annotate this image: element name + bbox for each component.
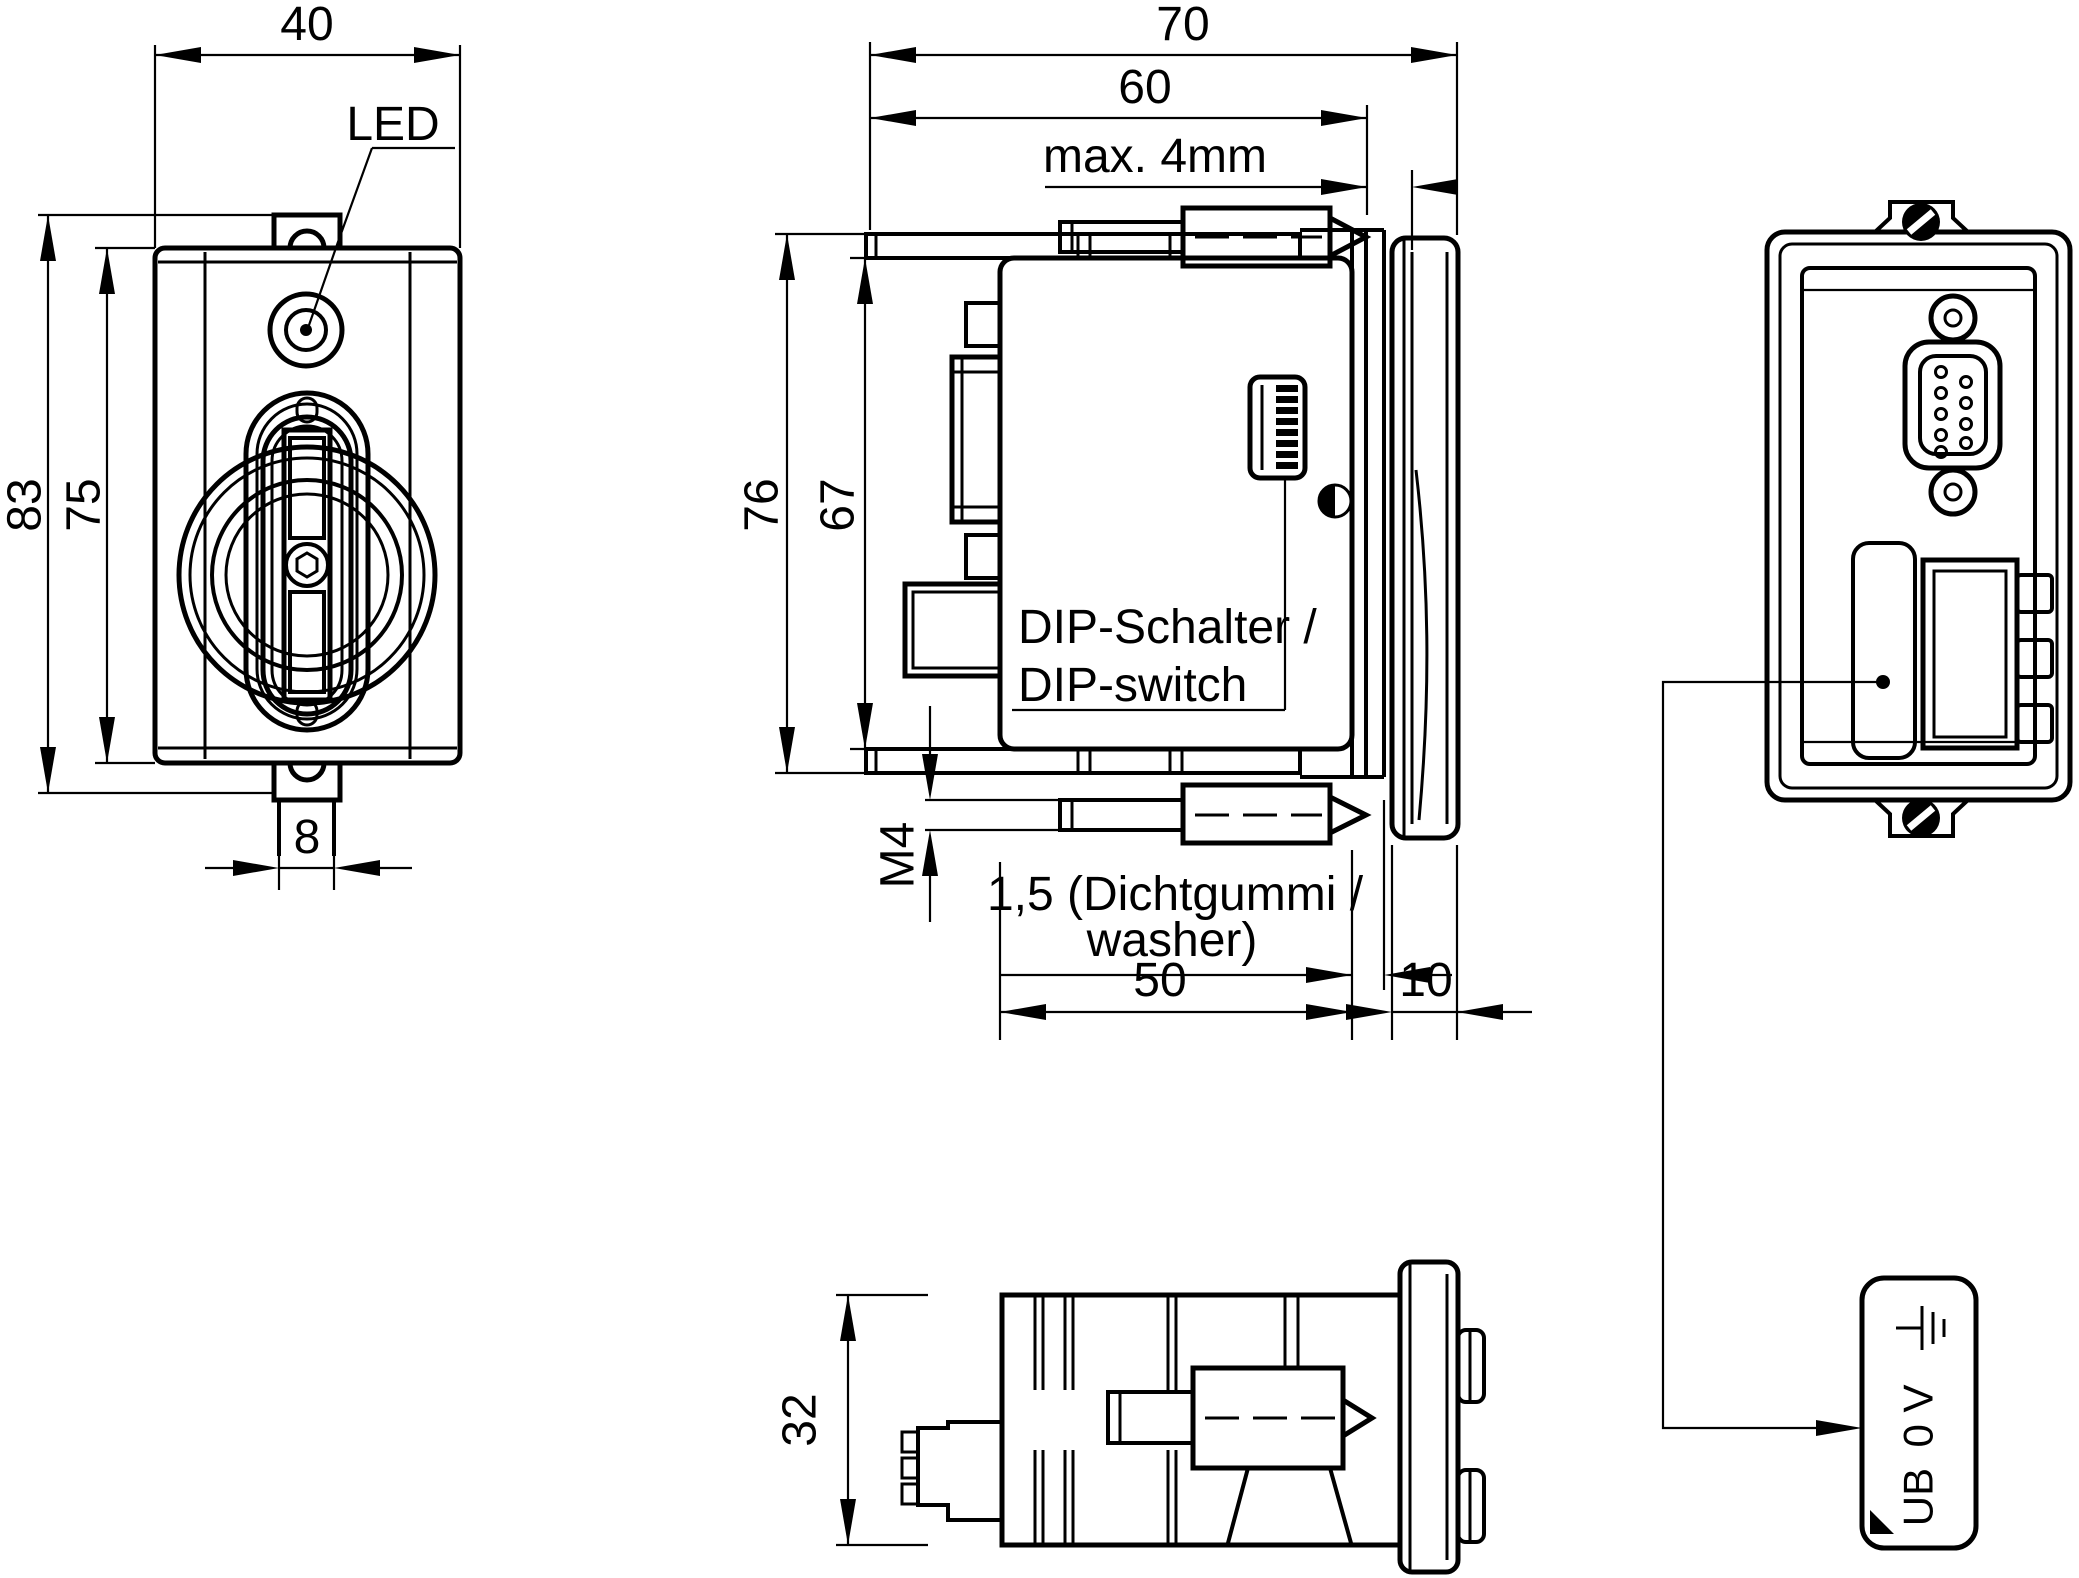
dim-side-bezel-depth-text: 10 [1399,954,1452,1007]
power-label-ub: UB [1895,1468,1942,1526]
drawing-canvas: LED 40 [0,0,2079,1578]
clamp-screw-bottom [1060,785,1366,843]
terminal-block-bottom-view [902,1422,1002,1520]
dsub-connector [1905,296,2000,514]
bottom-view: 32 [774,1262,1485,1572]
key-screw [286,544,328,586]
dim-front-face-height-text: 75 [58,478,111,531]
led-label: LED [346,98,439,151]
dim-side-outer-height-text: 76 [736,478,789,531]
bezel-side-profile [1392,238,1458,838]
dim-front-tab-width: 8 [205,811,412,890]
bezel-bottom-view [1400,1262,1484,1572]
dim-side-bezel-depth: 10 [1346,845,1532,1040]
dsub-side-profile [952,303,1000,578]
corner-mark [1870,1510,1894,1534]
rear-view [1663,202,2070,1436]
cover-screw-hole [1319,485,1351,517]
dip-label-line1: DIP-Schalter / [1018,601,1317,654]
key-switch [179,393,435,730]
rear-mount-tab-bottom [1875,799,1968,837]
front-view: LED 40 [0,0,460,890]
power-label-box: 0 V UB [1862,1278,1976,1548]
technical-drawing-page: LED 40 [0,0,2079,1578]
ground-symbol [1896,1306,1944,1350]
dim-bottom-depth-text: 32 [774,1393,827,1446]
thread-label-m4-text: M4 [872,822,925,889]
dim-front-tab-width-text: 8 [294,811,321,864]
dim-front-outer-height: 83 [0,215,274,793]
dim-bottom-depth: 32 [774,1295,929,1545]
power-label-0v: 0 V [1895,1384,1942,1447]
rear-frame-outline [1767,232,2070,800]
dim-side-body-depth-text: 50 [1133,954,1186,1007]
side-view: DIP-Schalter / DIP-switch [736,0,1533,1040]
mounting-tab-top [274,215,340,248]
dim-front-face-height: 75 [58,248,156,763]
led-indicator [270,294,342,366]
dip-label-line2: DIP-switch [1018,659,1247,712]
rear-label-window [1853,543,1915,758]
sealing-washer [1366,230,1384,777]
power-terminal-block [1923,560,2052,748]
dim-front-outer-height-text: 83 [0,478,52,531]
dim-front-width-text: 40 [280,0,333,51]
dim-side-total-depth-text: 70 [1156,0,1209,51]
dip-switch-label: DIP-Schalter / DIP-switch [1012,478,1317,712]
washer-note: 1,5 (Dichtgummi / washer) [987,800,1452,990]
dip-switch [1250,377,1305,478]
mount-rail-top [866,234,1300,258]
dim-side-body-height-text: 67 [812,478,865,531]
terminal-block-side [905,584,1000,676]
panel-thickness-text: max. 4mm [1043,130,1267,183]
dim-side-screw-depth-text: 60 [1118,61,1171,114]
clamp-screw-bottom-view [1108,1368,1372,1543]
rear-mount-tab-top [1875,202,1968,241]
